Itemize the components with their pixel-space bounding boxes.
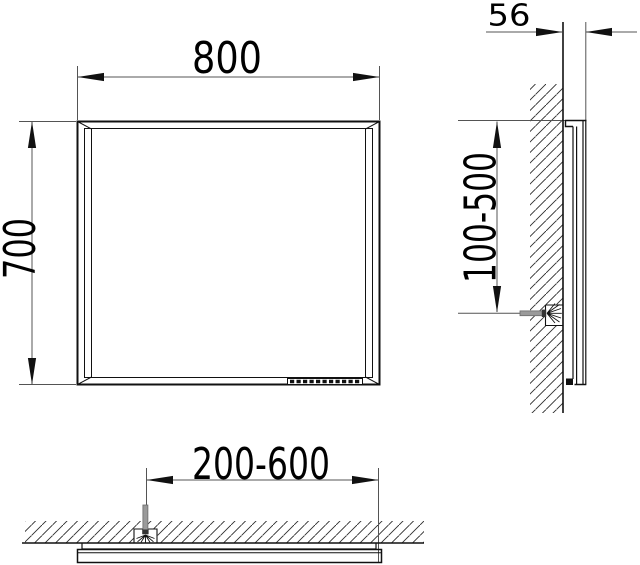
side-mirror-profile-lines (573, 121, 586, 385)
width-arrow-left (78, 73, 105, 81)
height-dimension-label: 700 (0, 218, 46, 279)
front-view (78, 122, 380, 385)
depth-arrow-left (536, 28, 563, 36)
mount-height-arrow-bottom (493, 286, 501, 313)
mirror-corner-chamfers (78, 122, 380, 385)
width-arrow-right (353, 73, 380, 81)
cable-range-dimension-label: 200-600 (192, 439, 330, 490)
plan-view-wall (25, 521, 424, 543)
height-arrow-top (28, 122, 36, 149)
cable-range-arrow-left (147, 476, 174, 484)
depth-arrow-right (586, 28, 612, 36)
cable-range-arrow-right (352, 476, 379, 484)
plan-wall-hatch (25, 521, 424, 543)
side-view-wall (530, 84, 563, 413)
side-bottom-rail (566, 379, 573, 386)
drawing-canvas: 800 700 56 100-500 200-600 (0, 0, 640, 565)
height-arrow-bottom (28, 358, 36, 385)
width-dimension-label: 800 (192, 33, 262, 84)
mirror-outer-frame (78, 122, 380, 385)
dimension-arrows (28, 28, 612, 484)
mount-height-dimension-label: 100-500 (456, 152, 507, 283)
technical-drawing: 800 700 56 100-500 200-600 (0, 0, 640, 565)
side-cable (520, 311, 544, 316)
mirror-inner-frame (85, 129, 373, 378)
plan-mirror-body (78, 550, 382, 563)
plan-cable-plug (142, 530, 148, 535)
mount-height-arrow-top (493, 122, 501, 149)
side-cable-plug (542, 310, 546, 317)
plan-mounting-rail (82, 544, 376, 550)
side-wall-hatch (530, 84, 563, 413)
dimension-labels: 800 700 56 100-500 200-600 (0, 0, 531, 490)
depth-dimension-label: 56 (488, 0, 531, 34)
